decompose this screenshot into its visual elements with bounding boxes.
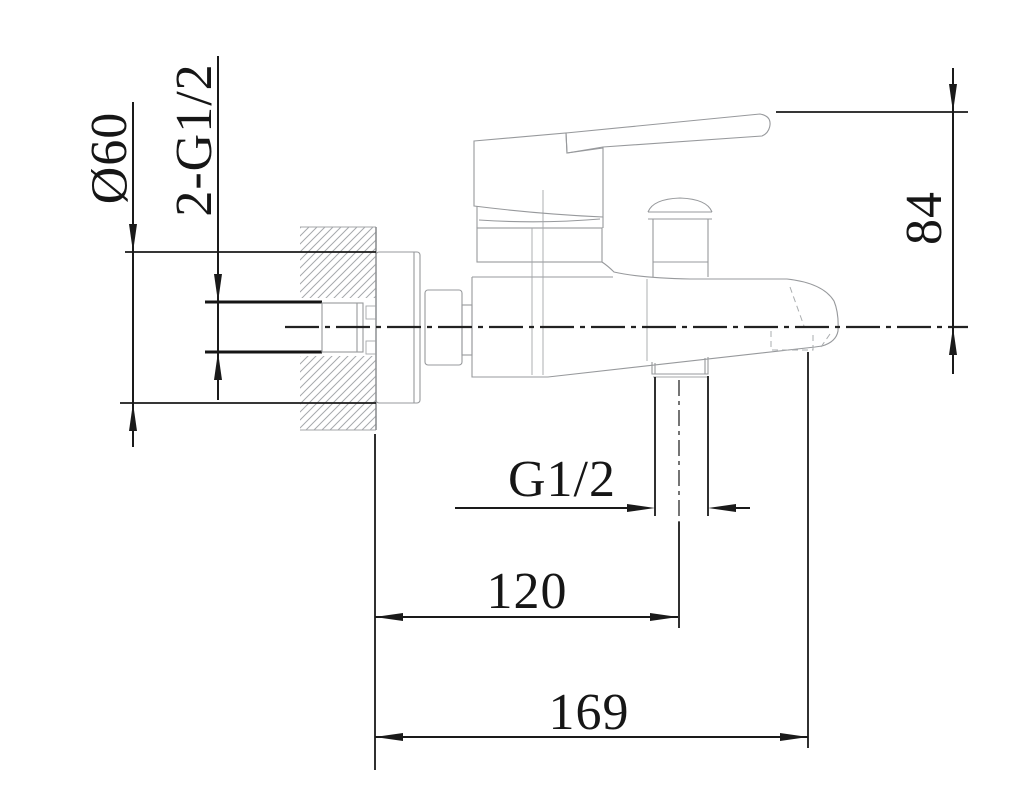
technical-drawing-canvas: Ø60 2-G1/2 84 G1/2 120 169 xyxy=(0,0,1023,800)
cartridge-lines xyxy=(532,190,543,375)
label-flange-diameter: Ø60 xyxy=(81,112,138,205)
arrowhead xyxy=(708,504,736,512)
valve-block xyxy=(477,228,602,262)
arrowhead xyxy=(375,733,403,741)
handle-cap xyxy=(474,133,603,217)
arrowhead xyxy=(214,352,222,380)
thread-nub-top xyxy=(366,306,376,319)
arrowhead xyxy=(214,274,222,302)
lever-blade xyxy=(566,114,770,153)
label-wall-to-diverter: 120 xyxy=(487,563,568,620)
arrowhead xyxy=(129,224,137,252)
wall-hatch xyxy=(300,227,376,430)
body-spout-contour xyxy=(472,262,838,377)
label-spout-height: 84 xyxy=(896,191,953,245)
diverter-knob xyxy=(648,198,712,277)
dimension-wall-to-spout-tip: 169 xyxy=(375,352,808,748)
thread-nub-bottom xyxy=(366,341,376,354)
label-wall-connections: 2-G1/2 xyxy=(166,63,223,216)
centerlines xyxy=(285,327,968,522)
arrowhead xyxy=(780,733,808,741)
knob-dome xyxy=(648,198,712,212)
arrowhead xyxy=(627,504,655,512)
faucet-body xyxy=(472,190,838,377)
dimension-diverter-thread: G1/2 xyxy=(455,376,750,516)
arrowhead xyxy=(375,613,403,621)
spout-hidden-lines xyxy=(771,287,830,350)
label-wall-to-spout-tip: 169 xyxy=(549,684,630,741)
technical-drawing: Ø60 2-G1/2 84 G1/2 120 169 xyxy=(0,0,1023,800)
dimension-wall-connections: 2-G1/2 xyxy=(166,56,223,400)
label-diverter-thread: G1/2 xyxy=(508,451,616,508)
arrowhead xyxy=(650,613,678,621)
arrowhead xyxy=(129,403,137,431)
arrowhead xyxy=(949,327,957,355)
arrowhead xyxy=(949,84,957,112)
handle-lever xyxy=(474,114,770,217)
